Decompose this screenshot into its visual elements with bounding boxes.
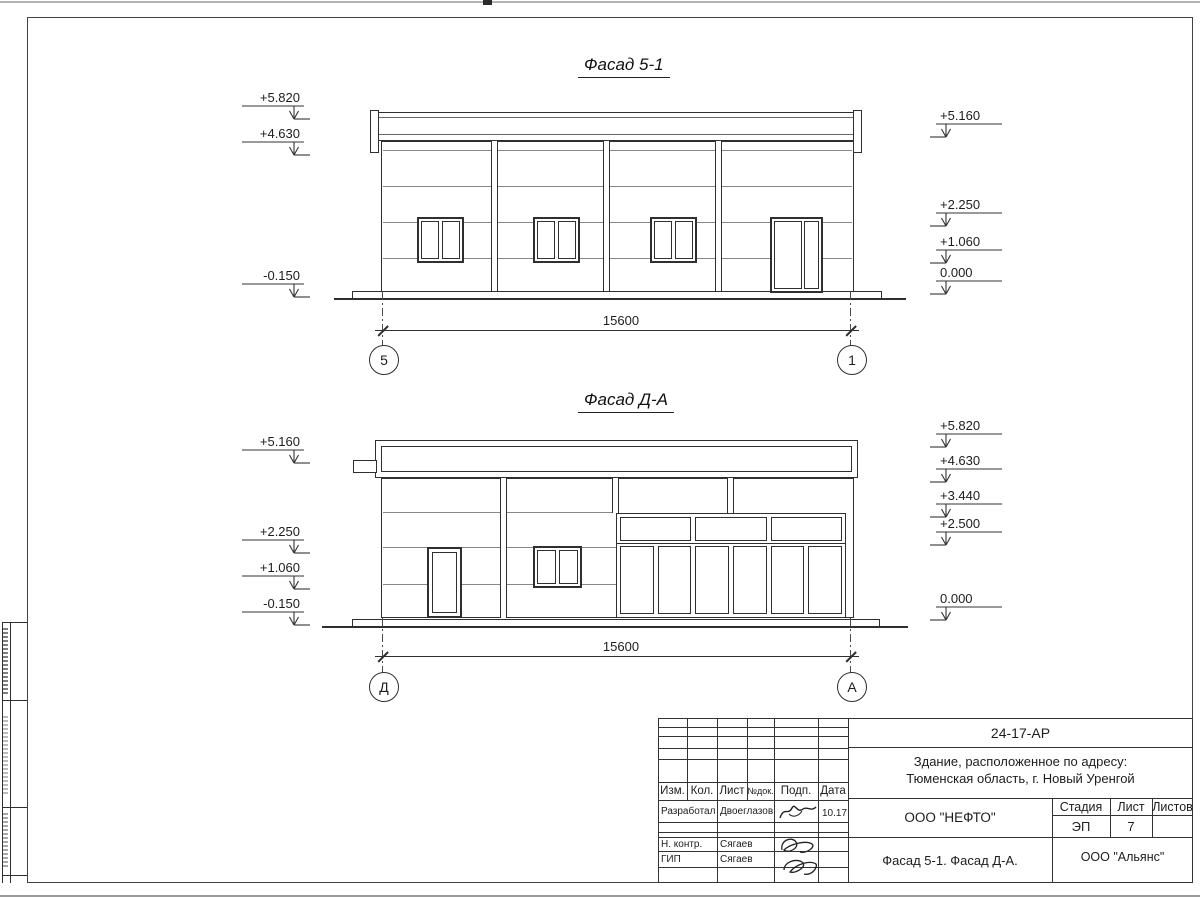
entrance-door	[770, 217, 823, 293]
storefront-glazing	[616, 513, 846, 618]
stage-value: ЭП	[1052, 816, 1110, 836]
object-address-line1: Здание, расположенное по адресу:	[848, 753, 1193, 770]
sign-band-inner	[381, 446, 852, 472]
axis-bubble-a: А	[837, 672, 867, 702]
plinth-line	[352, 619, 880, 620]
drawing-line	[559, 550, 578, 584]
glass-panel	[771, 546, 805, 614]
drawing-line	[879, 619, 880, 626]
glazing-row	[620, 546, 842, 614]
panel-joint	[383, 186, 852, 187]
window	[533, 546, 582, 588]
pilaster	[612, 478, 619, 513]
sheets-value	[1152, 816, 1193, 836]
axis-extension	[382, 618, 383, 680]
drawing-line	[804, 221, 819, 289]
company-name: ООО "НЕФТО"	[848, 798, 1052, 837]
drawing-sheet: Фасад 5-1	[0, 0, 1200, 900]
scan-edge-top	[0, 1, 1200, 3]
row-role: Разработал	[661, 806, 715, 817]
vertical-stamp-text	[3, 716, 8, 794]
firm-name: ООО "Альянс"	[1052, 837, 1193, 877]
facade2-title: Фасад Д-А	[578, 390, 674, 413]
drawing-line	[658, 800, 848, 801]
row-role: ГИП	[661, 854, 681, 865]
transom-row	[620, 517, 842, 541]
pilaster	[500, 478, 507, 618]
axis-bubble-1: 1	[837, 345, 867, 375]
transom-window	[771, 517, 842, 541]
drawing-line	[658, 736, 848, 737]
glass-panel	[695, 546, 729, 614]
drawing-line	[558, 221, 576, 259]
vertical-stamp-text	[3, 813, 8, 868]
vertical-stamp-text	[3, 628, 8, 694]
drawing-line	[617, 543, 845, 544]
drawing-line	[2, 700, 27, 701]
drawing-line	[658, 759, 848, 760]
drawing-line	[537, 550, 556, 584]
doc-number: 24-17-АР	[848, 724, 1193, 742]
drawing-line	[537, 221, 555, 259]
sheets-label: Листов	[1152, 799, 1193, 814]
parapet-end-cap-left	[370, 110, 379, 153]
drawing-line	[658, 748, 848, 749]
stage-label: Стадия	[1052, 799, 1110, 814]
scan-edge-bottom	[0, 895, 1200, 897]
glass-panel	[733, 546, 767, 614]
pilaster	[603, 141, 610, 292]
pilaster	[715, 141, 722, 292]
ground-line	[322, 626, 908, 628]
drawing-line	[654, 221, 672, 259]
drawing-line	[658, 822, 848, 823]
dimension-line	[375, 656, 859, 657]
sheet-label: Лист	[1110, 799, 1152, 814]
object-address-line2: Тюменская область, г. Новый Уренгой	[848, 770, 1193, 787]
axis-extension	[850, 618, 851, 680]
ground-line	[334, 298, 906, 300]
drawing-line	[675, 221, 693, 259]
drawing-line	[442, 221, 460, 259]
drawing-line	[780, 806, 816, 818]
drawing-line	[352, 619, 353, 626]
col-izm: Изм.	[658, 783, 687, 799]
drawing-line	[2, 807, 27, 808]
col-list: Лист	[717, 783, 747, 799]
drawing-line	[374, 134, 860, 135]
drawing-line	[432, 552, 457, 613]
row-name: Сягаев	[720, 854, 753, 865]
window	[650, 217, 697, 263]
signature	[776, 834, 820, 880]
col-podp: Подп.	[774, 783, 818, 799]
drawing-line	[848, 747, 1193, 748]
panel-joint	[383, 150, 852, 151]
col-data: Дата	[818, 783, 848, 799]
row-role: Н. контр.	[661, 839, 702, 850]
drawing-line	[421, 221, 439, 259]
col-kol: Кол.	[687, 783, 717, 799]
glass-panel	[620, 546, 654, 614]
row-name: Двоеглазов	[720, 806, 773, 817]
parapet-end-cap-right	[853, 110, 862, 153]
axis-bubble-d: Д	[369, 672, 399, 702]
transom-window	[695, 517, 766, 541]
drawing-line	[10, 622, 11, 883]
transom-window	[620, 517, 691, 541]
drawing-line	[374, 117, 860, 118]
dimension-value: 15600	[577, 639, 665, 654]
side-door	[427, 547, 462, 618]
drawing-line	[658, 832, 848, 833]
pilaster	[491, 141, 498, 292]
drawing-line	[784, 860, 816, 874]
drawing-line	[789, 811, 802, 816]
dimension-line	[375, 330, 859, 331]
axis-bubble-5: 5	[369, 345, 399, 375]
glass-panel	[808, 546, 842, 614]
band-bracket	[353, 460, 377, 473]
sheet-title: Фасад 5-1. Фасад Д-А.	[848, 837, 1052, 883]
row-name: Сягаев	[720, 839, 753, 850]
dimension-value: 15600	[577, 313, 665, 328]
col-ndok: №док.	[747, 783, 774, 799]
drawing-line	[774, 221, 802, 289]
window	[417, 217, 464, 263]
sheet-value: 7	[1110, 816, 1152, 836]
plinth-line	[352, 291, 882, 292]
signature	[777, 800, 819, 824]
drawing-line	[2, 622, 27, 623]
window	[533, 217, 580, 263]
axis-extension	[382, 292, 383, 352]
row-date: 10.17	[822, 808, 847, 819]
glass-panel	[658, 546, 692, 614]
axis-extension	[850, 292, 851, 352]
drawing-line	[2, 875, 27, 876]
drawing-line	[782, 839, 813, 852]
facade1-title: Фасад 5-1	[578, 55, 670, 78]
drawing-line	[658, 727, 848, 728]
scan-artifact	[483, 0, 492, 5]
pilaster	[727, 478, 734, 513]
